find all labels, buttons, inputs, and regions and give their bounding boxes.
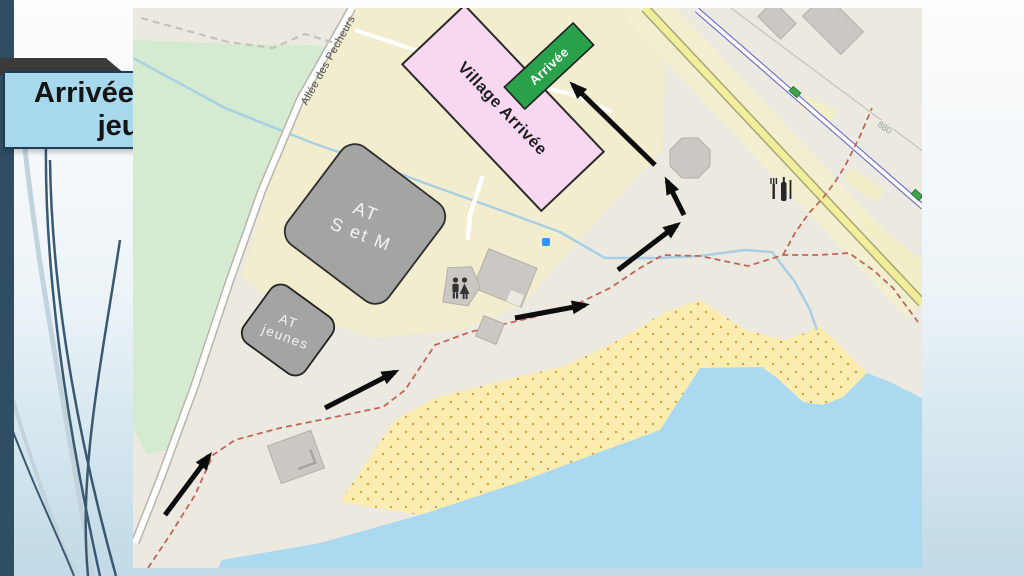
blue-dot-marker (542, 238, 550, 246)
map: Allée des Pecheurs 880 AT S et M AT jeun… (133, 8, 922, 568)
decorative-curves (0, 140, 135, 576)
slide-background: Arrivée courses jeunes (0, 0, 1024, 576)
building-octagon (670, 138, 710, 178)
